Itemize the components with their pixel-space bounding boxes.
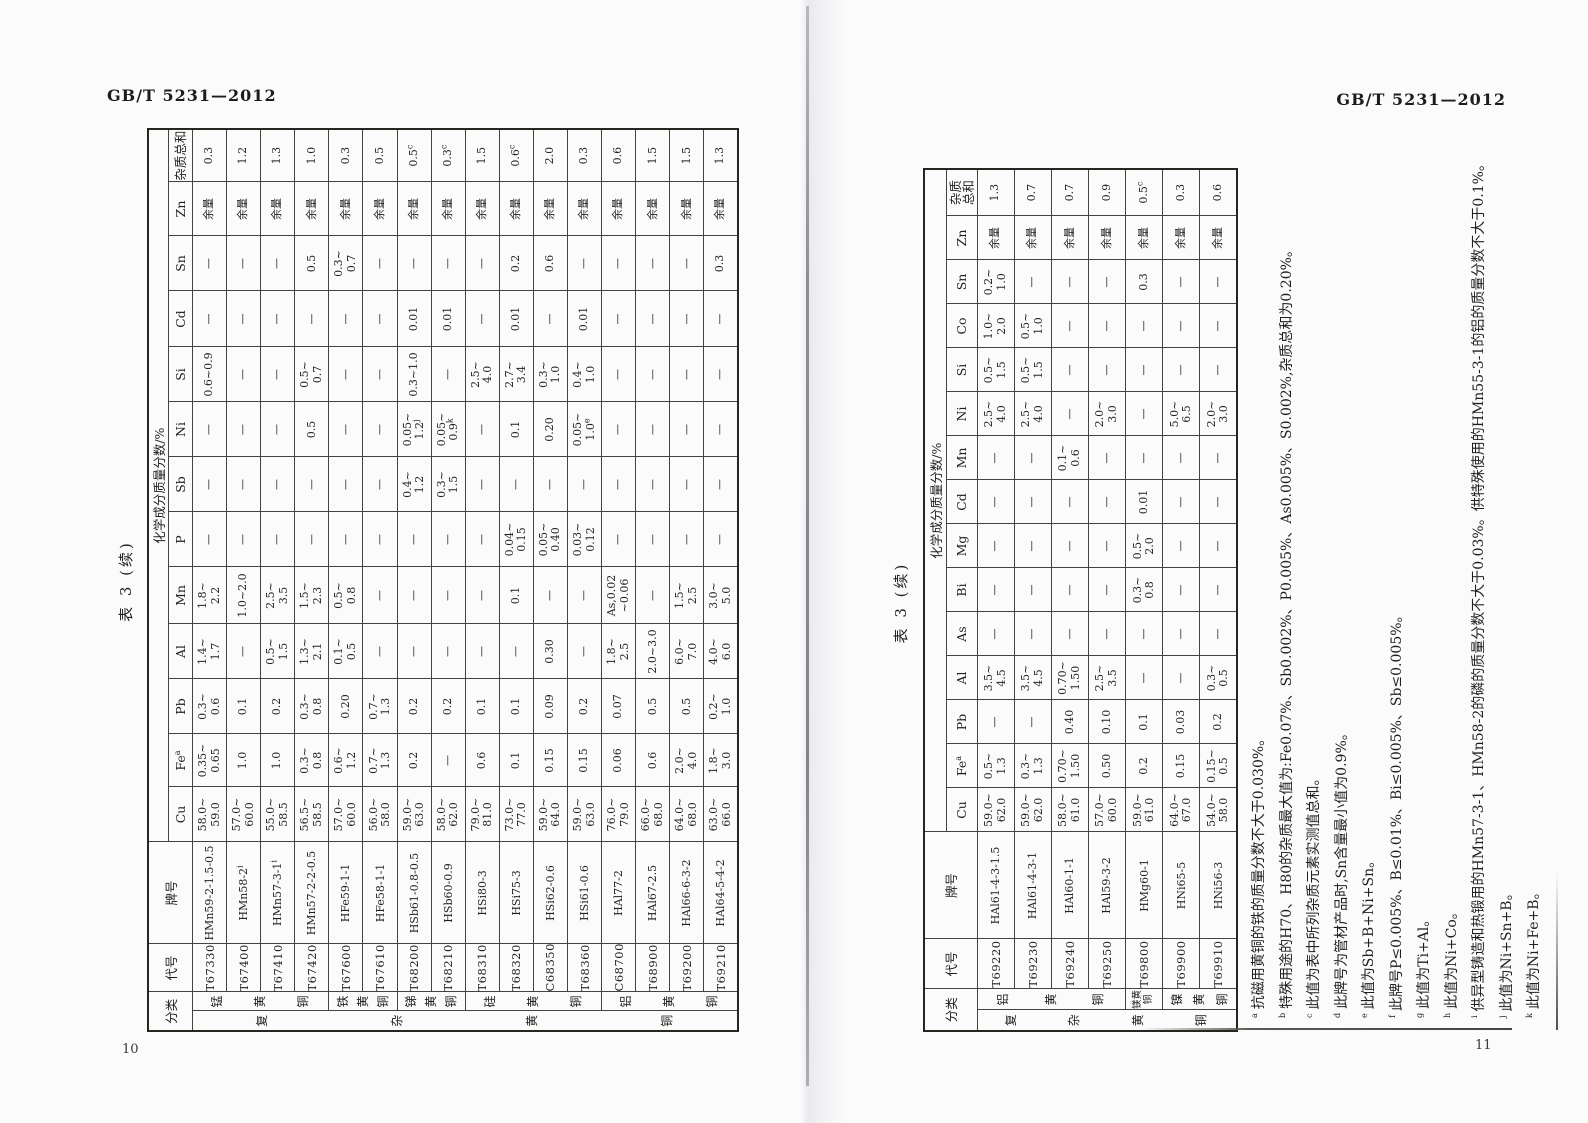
value-cell: — [1014, 260, 1051, 304]
value-cell: 0.1 [499, 734, 533, 787]
alloy-name: HSb61-0.8-0.5 [397, 842, 431, 944]
value-cell: — [1088, 568, 1125, 612]
value-cell: — [193, 457, 227, 512]
value-cell: — [1051, 524, 1088, 568]
alloy-row: T69210HAl64-5-4-263.0~ 66.01.8~ 3.00.2~ … [704, 129, 738, 1031]
value-cell: 3.0~ 5.0 [704, 567, 738, 624]
value-cell: — [1088, 304, 1125, 348]
footnote-ref: k [446, 418, 455, 423]
value-cell: 0.2 [397, 679, 431, 734]
alloy-row: T69200HAl66-6-3-264.0~ 68.02.0~ 4.00.56.… [670, 129, 704, 1031]
footnote-line: k此值为Ni+Fe+B。 [1521, 113, 1549, 1018]
alloy-code: T68210 [431, 944, 465, 992]
value-cell: — [193, 236, 227, 291]
running-head: GB/T 5231—2012 [107, 86, 277, 105]
value-cell: — [1200, 612, 1237, 656]
value-cell: — [465, 291, 499, 347]
value-cell: 0.3~ 0.5 [1200, 656, 1237, 700]
value-cell: 0.3 [568, 129, 602, 182]
value-cell: 0.2 [397, 734, 431, 787]
alloy-code: C68700 [602, 944, 636, 992]
value-cell: 0.6 [465, 734, 499, 787]
element-header: Cd [169, 291, 193, 347]
alloy-name: HAl60-1-1 [1051, 832, 1088, 939]
element-header: Mn [946, 436, 977, 480]
value-cell: 1.2 [227, 129, 261, 182]
alloy-row: 锑 黄 铜T68200HSb61-0.8-0.559.0~ 63.00.20.2… [397, 129, 431, 1031]
value-cell: 0.3~ 1.3 [1014, 744, 1051, 788]
value-cell: 0.3c [431, 129, 465, 182]
value-cell: — [261, 512, 295, 567]
value-cell: 2.5~ 4.0 [977, 392, 1014, 436]
alloy-row: 镁黄铜T69800HMg60-159.0~ 61.00.20.1——0.3~ 0… [1126, 169, 1163, 1031]
value-cell: 0.3 [329, 129, 363, 182]
value-cell: — [1200, 436, 1237, 480]
element-header: Pb [946, 700, 977, 744]
value-cell: — [363, 624, 397, 679]
value-cell: 余量 [465, 182, 499, 236]
alloy-code: T68360 [568, 944, 602, 992]
alloy-name: HMn58-2i [227, 842, 261, 944]
alloy-name: HSi61-0.6 [568, 842, 602, 944]
value-cell: — [193, 512, 227, 567]
alloy-name: HAl61-4-3-1 [1014, 832, 1051, 939]
value-cell: — [1014, 700, 1051, 744]
alloy-row: T67610HFe58-1-156.0~ 58.00.7~ 1.30.7~ 1.… [363, 129, 397, 1031]
value-cell: 余量 [193, 182, 227, 236]
class-column-header: 分类 [148, 992, 193, 1031]
value-cell: — [1126, 656, 1163, 700]
footnote-mark: h [1443, 1013, 1452, 1018]
footnote-mark: b [1278, 1013, 1287, 1018]
value-cell: — [295, 457, 329, 512]
value-cell: 1.4~ 1.7 [193, 624, 227, 679]
table-footnotes: a抗磁用黄铜的铁的质量分数不大于0.030%。b特殊用途的H70、H80的杂质最… [1246, 113, 1549, 1032]
value-cell: 2.0~3.0 [636, 624, 670, 679]
value-cell: 0.3~ 1.5 [431, 457, 465, 512]
value-cell: — [227, 402, 261, 457]
alloy-code: C68350 [533, 944, 567, 992]
value-cell: — [704, 347, 738, 402]
element-header: Fea [946, 744, 977, 788]
value-cell: 0.70~ 1.50 [1051, 744, 1088, 788]
footnote-line: c此值为表中所列杂质元素实测值总和。 [1301, 113, 1329, 1018]
value-cell: — [1200, 480, 1237, 524]
value-cell: 66.0~ 68.0 [636, 787, 670, 842]
value-cell: 0.2 [1200, 700, 1237, 744]
footnote-line: j此值为Ni+Sn+B。 [1494, 113, 1522, 1018]
alloy-name: HFe58-1-1 [363, 842, 397, 944]
alloy-code: T69230 [1014, 939, 1051, 989]
value-cell: — [465, 624, 499, 679]
value-cell: 76.0~ 79.0 [602, 787, 636, 842]
element-header: Ni [169, 402, 193, 457]
value-cell: 0.05~ 1.2j [397, 402, 431, 457]
value-cell: 0.5~ 1.3 [977, 744, 1014, 788]
value-cell: — [1051, 612, 1088, 656]
composition-span-header: 化学成分质量分数/% [148, 129, 169, 842]
value-cell: — [1088, 260, 1125, 304]
value-cell: — [1163, 524, 1200, 568]
value-cell: — [568, 457, 602, 512]
element-header: Al [946, 656, 977, 700]
value-cell: 0.04~ 0.15 [499, 512, 533, 567]
value-cell: 0.5 [636, 679, 670, 734]
value-cell: 1.5 [670, 129, 704, 182]
value-cell: 64.0~ 67.0 [1163, 788, 1200, 832]
group-label: 铝 黄 铜 [977, 989, 1126, 1010]
value-cell: — [329, 512, 363, 567]
alloy-name: HAl67-2.5 [636, 842, 670, 944]
value-cell: 余量 [1200, 216, 1237, 260]
alloy-name: HAl59-3-2 [1088, 832, 1125, 939]
value-cell: — [261, 402, 295, 457]
value-cell: 0.3 [1163, 169, 1200, 216]
value-cell: 0.4~ 1.0 [568, 347, 602, 402]
alloy-row: T68900HAl67-2.566.0~ 68.00.60.52.0~3.0——… [636, 129, 670, 1031]
value-cell: 0.6 [533, 236, 567, 291]
element-header: Si [946, 348, 977, 392]
value-cell: 0.09 [533, 679, 567, 734]
value-cell: — [363, 347, 397, 402]
value-cell: 余量 [1163, 216, 1200, 260]
class-column-header: 分类 [924, 989, 977, 1031]
alloy-row: T69910HNi56-354.0~ 58.00.15~ 0.50.20.3~ … [1200, 169, 1237, 1031]
value-cell: 0.7 [1014, 169, 1051, 216]
value-cell: — [670, 347, 704, 402]
alloy-row: T69230HAl61-4-3-159.0~ 62.00.3~ 1.3—3.5~… [1014, 169, 1051, 1031]
footnote-line: g此值为Ti+Al。 [1411, 113, 1439, 1018]
alloy-name: HAl64-5-4-2 [704, 842, 738, 944]
value-cell: 0.3~ 0.8 [295, 679, 329, 734]
value-cell: — [1014, 568, 1051, 612]
alloy-name: HAl77-2 [602, 842, 636, 944]
footnote-mark: k [1525, 1013, 1534, 1018]
value-cell: 0.5 [295, 236, 329, 291]
value-cell: — [602, 347, 636, 402]
alloy-name: HMg60-1 [1126, 832, 1163, 939]
value-cell: 0.1~ 0.6 [1051, 436, 1088, 480]
value-cell: 0.6~ 1.2 [329, 734, 363, 787]
value-cell: 0.6 [636, 734, 670, 787]
footnote-ref: j [411, 420, 420, 422]
value-cell: 2.0 [533, 129, 567, 182]
element-header: Mg [946, 524, 977, 568]
value-cell: 0.4~ 1.2 [397, 457, 431, 512]
value-cell: 0.5~ 0.8 [329, 567, 363, 624]
element-header: Mn [169, 567, 193, 624]
value-cell: 2.0~ 3.0 [1088, 392, 1125, 436]
value-cell: 0.1 [227, 679, 261, 734]
alloy-row: T69240HAl60-1-158.0~ 61.00.70~ 1.500.400… [1051, 169, 1088, 1031]
value-cell: 5.0~ 6.5 [1163, 392, 1200, 436]
footnote-line: d此牌号为管材产品时,Sn含量最小值为0.9%。 [1329, 113, 1357, 1018]
element-header: Cu [946, 788, 977, 832]
value-cell: — [1163, 480, 1200, 524]
footnote-ref: c [439, 145, 448, 149]
book-gutter-line [806, 6, 809, 1086]
value-cell: — [227, 236, 261, 291]
value-cell: — [329, 291, 363, 347]
value-cell: 余量 [533, 182, 567, 236]
value-cell: 0.3~ 0.7 [329, 236, 363, 291]
value-cell: 1.8~ 2.2 [193, 567, 227, 624]
value-cell: — [1126, 348, 1163, 392]
alloy-row: 铝 黄 铜C68700HAl77-276.0~ 79.00.060.071.8~… [602, 129, 636, 1031]
element-header: Si [169, 347, 193, 402]
value-cell: — [1088, 348, 1125, 392]
value-cell: — [1014, 612, 1051, 656]
alloy-name: HMn57-3-1i [261, 842, 295, 944]
value-cell: 0.2 [499, 236, 533, 291]
value-cell: — [465, 402, 499, 457]
value-cell: — [397, 624, 431, 679]
value-cell: 2.0~ 3.0 [1200, 392, 1237, 436]
value-cell: — [261, 291, 295, 347]
value-cell: — [363, 402, 397, 457]
value-cell: 0.1 [499, 567, 533, 624]
value-cell: 4.0~ 6.0 [704, 624, 738, 679]
value-cell: — [1163, 348, 1200, 392]
value-cell: — [1051, 260, 1088, 304]
alloy-code: T68200 [397, 944, 431, 992]
value-cell: 1.5~ 2.3 [295, 567, 329, 624]
value-cell: 0.20 [533, 402, 567, 457]
value-cell: — [1014, 436, 1051, 480]
value-cell: 2.7~ 3.4 [499, 347, 533, 402]
value-cell: 0.05~ 0.40 [533, 512, 567, 567]
value-cell: 0.5c [397, 129, 431, 182]
value-cell: 0.5~ 0.7 [295, 347, 329, 402]
value-cell: — [670, 402, 704, 457]
page-number: 10 [122, 1042, 139, 1057]
element-header: Bi [946, 568, 977, 612]
value-cell: 0.15 [533, 734, 567, 787]
value-cell: 0.50 [1088, 744, 1125, 788]
footnote-ref: c [507, 145, 516, 149]
value-cell: 56.0~ 58.0 [363, 787, 397, 842]
footnote-mark: j [1498, 1016, 1507, 1018]
alloy-name: HSi75-3 [499, 842, 533, 944]
value-cell: — [602, 512, 636, 567]
value-cell: 0.2 [1126, 744, 1163, 788]
value-cell: — [1163, 260, 1200, 304]
value-cell: 63.0~ 66.0 [704, 787, 738, 842]
value-cell: — [363, 236, 397, 291]
value-cell: — [1200, 568, 1237, 612]
value-cell: — [465, 512, 499, 567]
value-cell: As,0.02 ~0.06 [602, 567, 636, 624]
value-cell: 59.0~ 61.0 [1126, 788, 1163, 832]
value-cell: 0.3~1.0 [397, 347, 431, 402]
value-cell: 0.06 [602, 734, 636, 787]
value-cell: — [1051, 392, 1088, 436]
value-cell: 1.3~ 2.1 [295, 624, 329, 679]
group-label: 镁黄铜 [1126, 989, 1163, 1010]
value-cell: — [295, 291, 329, 347]
footnote-line: f此牌号P≤0.005%、B≤0.01%、Bi≤0.005%、Sb≤0.005%… [1384, 113, 1412, 1018]
value-cell: — [227, 291, 261, 347]
alloy-row: T69250HAl59-3-257.0~ 60.00.500.102.5~ 3.… [1088, 169, 1125, 1031]
value-cell: — [1126, 612, 1163, 656]
alloy-row: C68350HSi62-0.659.0~ 64.00.150.090.30—0.… [533, 129, 567, 1031]
alloy-code: T69240 [1051, 939, 1088, 989]
value-cell: — [1200, 524, 1237, 568]
value-cell: — [670, 291, 704, 347]
footnote-line: a抗磁用黄铜的铁的质量分数不大于0.030%。 [1246, 113, 1274, 1018]
composition-table-page11: 分类代号牌号化学成分质量分数/%CuFeaPbAlAsBiMgCdMnNiSiC… [923, 168, 1238, 1032]
page-edge-line [1556, 872, 1558, 1030]
value-cell: 0.40 [1051, 700, 1088, 744]
alloy-code: T69210 [704, 944, 738, 992]
alloy-name: HSb60-0.9 [431, 842, 465, 944]
value-cell: — [227, 347, 261, 402]
footnote-line: e此值为Sb+B+Ni+Sn。 [1356, 113, 1384, 1018]
value-cell: 0.2 [568, 679, 602, 734]
value-cell: 余量 [499, 182, 533, 236]
group-label: 锰 黄 铜 [193, 992, 329, 1011]
value-cell: 59.0~ 64.0 [533, 787, 567, 842]
value-cell: — [1126, 392, 1163, 436]
value-cell: 58.0~ 62.0 [431, 787, 465, 842]
value-cell: 0.03 [1163, 700, 1200, 744]
value-cell: 0.1 [465, 679, 499, 734]
footnote-mark: a [1250, 1013, 1259, 1018]
value-cell: — [431, 512, 465, 567]
alloy-code: T67330 [193, 944, 227, 992]
value-cell: 0.5~ 1.5 [261, 624, 295, 679]
value-cell: 1.0 [295, 129, 329, 182]
value-cell: — [227, 624, 261, 679]
footnote-ref: a [173, 750, 182, 755]
value-cell: 余量 [1088, 216, 1125, 260]
alloy-code: T69250 [1088, 939, 1125, 989]
footnote-mark: f [1388, 1015, 1397, 1018]
composition-span-header: 化学成分质量分数/% [924, 169, 946, 832]
value-cell: — [1200, 304, 1237, 348]
value-cell: 0.1 [499, 679, 533, 734]
alloy-row: T67410HMn57-3-1i55.0~ 58.51.00.20.5~ 1.5… [261, 129, 295, 1031]
value-cell: 59.0~ 62.0 [977, 788, 1014, 832]
value-cell: 0.70~ 1.50 [1051, 656, 1088, 700]
value-cell: — [1200, 260, 1237, 304]
element-header: Sn [169, 236, 193, 291]
name-column-header: 牌号 [148, 842, 193, 944]
value-cell: — [193, 291, 227, 347]
group-label: 锑 黄 铜 [397, 992, 465, 1011]
alloy-name: HMn59-2-1.5-0.5 [193, 842, 227, 944]
page-10-rotated-table: 表 3 (续) 分类代号牌号化学成分质量分数/%CuFeaPbAlMnPSbNi… [115, 112, 745, 1032]
value-cell: — [602, 236, 636, 291]
value-cell: 0.01 [499, 291, 533, 347]
value-cell: 1.3 [977, 169, 1014, 216]
value-cell: 55.0~ 58.5 [261, 787, 295, 842]
value-cell: — [363, 567, 397, 624]
value-cell: — [1126, 304, 1163, 348]
value-cell: 0.3~ 1.0 [533, 347, 567, 402]
value-cell: 余量 [261, 182, 295, 236]
footnote-line: h此值为Ni+Co。 [1439, 113, 1467, 1018]
value-cell: — [261, 347, 295, 402]
value-cell: — [1051, 348, 1088, 392]
footnote-mark: d [1333, 1013, 1342, 1018]
value-cell: — [670, 512, 704, 567]
value-cell: — [1163, 304, 1200, 348]
value-cell: 余量 [329, 182, 363, 236]
alloy-row: T68210HSb60-0.958.0~ 62.0—0.2———0.3~ 1.5… [431, 129, 465, 1031]
value-cell: — [1163, 612, 1200, 656]
alloy-name: HNi65-5 [1163, 832, 1200, 939]
value-cell: 3.5~ 4.5 [977, 656, 1014, 700]
value-cell: 0.01 [1126, 480, 1163, 524]
value-cell: 79.0~ 81.0 [465, 787, 499, 842]
value-cell: 0.3~ 0.6 [193, 679, 227, 734]
alloy-row: 镍 黄 铜T69900HNi65-564.0~ 67.00.150.03————… [1163, 169, 1200, 1031]
value-cell: 0.5~ 1.5 [977, 348, 1014, 392]
alloy-code: T68310 [465, 944, 499, 992]
value-cell: — [193, 402, 227, 457]
value-cell: 0.2~ 1.0 [977, 260, 1014, 304]
table-title: 表 3 (续) [890, 173, 910, 1032]
value-cell: 0.3~ 0.8 [295, 734, 329, 787]
alloy-code: T67400 [227, 944, 261, 992]
value-cell: 1.0~ 2.0 [977, 304, 1014, 348]
value-cell: — [363, 291, 397, 347]
alloy-row: T67400HMn58-2i57.0~ 60.01.00.1—1.0~2.0——… [227, 129, 261, 1031]
value-cell: 2.5~ 4.0 [465, 347, 499, 402]
alloy-name: HSi62-0.6 [533, 842, 567, 944]
value-cell: 2.5~ 3.5 [1088, 656, 1125, 700]
value-cell: 0.1 [1126, 700, 1163, 744]
value-cell: 0.20 [329, 679, 363, 734]
value-cell: 0.5~ 1.5 [1014, 348, 1051, 392]
value-cell: 59.0~ 63.0 [397, 787, 431, 842]
element-header: 杂质 总和 [946, 169, 977, 216]
value-cell: 2.5~ 4.0 [1014, 392, 1051, 436]
value-cell: 0.30 [533, 624, 567, 679]
value-cell: 余量 [1051, 216, 1088, 260]
value-cell: 余量 [363, 182, 397, 236]
value-cell: 余量 [568, 182, 602, 236]
alloy-name: HSi80-3 [465, 842, 499, 944]
value-cell: 58.0~ 61.0 [1051, 788, 1088, 832]
value-cell: 0.01 [431, 291, 465, 347]
group-label: 铁 黄 铜 [329, 992, 397, 1011]
value-cell: — [568, 236, 602, 291]
value-cell: — [397, 236, 431, 291]
value-cell: — [704, 512, 738, 567]
value-cell: — [977, 700, 1014, 744]
value-cell: — [977, 480, 1014, 524]
running-head: GB/T 5231—2012 [1330, 90, 1506, 109]
value-cell: 57.0~ 60.0 [1088, 788, 1125, 832]
value-cell: 0.6c [499, 129, 533, 182]
value-cell: — [431, 236, 465, 291]
value-cell: 余量 [227, 182, 261, 236]
page-11-rotated-table: 表 3 (续) 分类代号牌号化学成分质量分数/%CuFeaPbAlAsBiMgC… [890, 112, 1560, 1032]
group-label: 硅 黄 铜 [465, 992, 601, 1011]
value-cell: — [1051, 304, 1088, 348]
footnote-mark: i [1470, 1015, 1479, 1018]
alloy-code: T69910 [1200, 939, 1237, 989]
value-cell: — [568, 567, 602, 624]
value-cell: 余量 [670, 182, 704, 236]
value-cell: 0.2~ 1.0 [704, 679, 738, 734]
element-header: Ni [946, 392, 977, 436]
value-cell: — [1014, 524, 1051, 568]
value-cell: — [363, 457, 397, 512]
alloy-code: T69200 [670, 944, 704, 992]
